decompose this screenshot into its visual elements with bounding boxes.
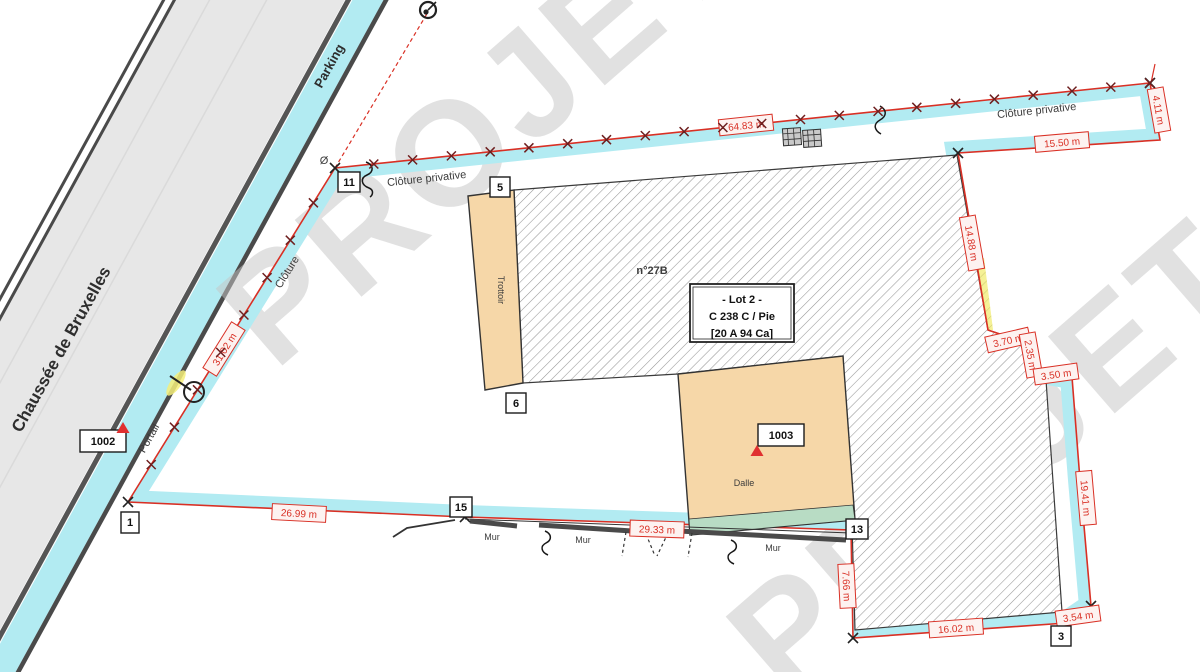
diameter-symbol: Ø xyxy=(320,155,329,167)
measurement-766: 7.66 m xyxy=(838,564,856,609)
mur-label-2: Mur xyxy=(575,535,591,545)
svg-text:29.33 m: 29.33 m xyxy=(639,524,676,536)
svg-text:15: 15 xyxy=(455,502,467,514)
lot-box-line3: [20 A 94 Ca] xyxy=(711,328,773,340)
point-13: 13 xyxy=(846,519,868,539)
site-plan-canvas: PROJET PROJET Trottoir Dalle Mur Mur Mur xyxy=(0,0,1200,672)
dalle-label: Dalle xyxy=(734,478,755,488)
trottoir-label: Trottoir xyxy=(496,276,506,304)
lot-box-line1: - Lot 2 - xyxy=(722,294,762,306)
svg-text:1002: 1002 xyxy=(91,436,115,448)
svg-text:11: 11 xyxy=(343,177,355,189)
point-5: 5 xyxy=(490,177,510,197)
point-1: 1 xyxy=(121,512,139,533)
point-11: 11 xyxy=(338,172,360,192)
wall-segment-1 xyxy=(470,521,517,526)
svg-text:6: 6 xyxy=(513,398,519,410)
svg-text:3: 3 xyxy=(1058,631,1064,643)
svg-text:13: 13 xyxy=(851,524,863,536)
point-3: 3 xyxy=(1051,626,1071,646)
trottoir-strip xyxy=(468,190,523,390)
point-6: 6 xyxy=(506,393,526,413)
lot-box-line2: C 238 C / Pie xyxy=(709,311,775,323)
borne-1002: 1002 xyxy=(80,430,126,452)
mur-label-3: Mur xyxy=(765,543,781,553)
svg-text:7.66 m: 7.66 m xyxy=(839,571,852,602)
measurement-2933: 29.33 m xyxy=(630,520,685,538)
parcel-number-label: n°27B xyxy=(636,265,667,277)
survey-point-symbol xyxy=(420,2,436,18)
wall-end-tick xyxy=(393,520,455,537)
squiggle-wall-left xyxy=(542,531,550,555)
svg-text:26.99 m: 26.99 m xyxy=(281,508,318,521)
measurement-2699: 26.99 m xyxy=(272,504,327,523)
svg-text:1003: 1003 xyxy=(769,430,793,442)
lot-info-box: - Lot 2 - C 238 C / Pie [20 A 94 Ca] xyxy=(690,284,794,342)
mur-label-1: Mur xyxy=(484,532,500,542)
point-15: 15 xyxy=(450,497,472,517)
measurement-1550: 15.50 m xyxy=(1034,132,1089,153)
svg-text:1: 1 xyxy=(127,517,133,529)
site-plan-drawing: PROJET PROJET Trottoir Dalle Mur Mur Mur xyxy=(0,0,1200,672)
wall-segment-2 xyxy=(539,525,632,531)
measurement-1602: 16.02 m xyxy=(929,618,984,638)
svg-text:5: 5 xyxy=(497,182,503,194)
borne-1003: 1003 xyxy=(758,424,804,446)
squiggle-wall-right xyxy=(728,540,736,564)
